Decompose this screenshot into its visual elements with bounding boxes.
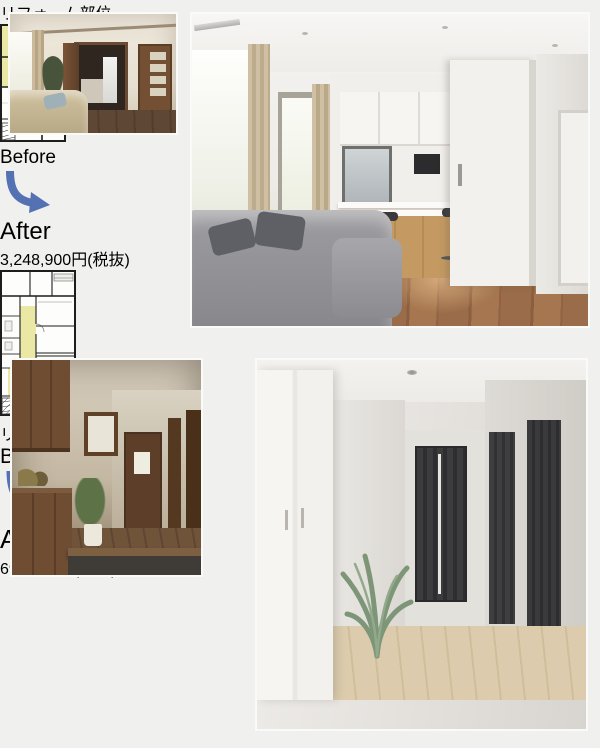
wall-frame: [84, 412, 118, 456]
back-door: [124, 432, 162, 536]
doorway: [558, 110, 590, 286]
downlight: [552, 44, 558, 47]
price-value: 3,248,900: [0, 252, 71, 269]
refrigerator: [103, 57, 117, 103]
brochure-page: リフォーム部位 Before After 3,248,900円(税抜): [0, 0, 600, 748]
cushion: [254, 211, 306, 251]
downlight: [442, 26, 448, 29]
sliding-door: [450, 60, 536, 286]
after-photo-ldk: [190, 12, 590, 328]
downlight: [302, 32, 308, 35]
before-photo-living-room: [8, 12, 178, 135]
door-handle: [458, 164, 462, 186]
door-glass-stripe: [438, 454, 441, 594]
sofa-arm: [332, 238, 402, 318]
decor-bottles: [18, 460, 58, 486]
plant-pot: [84, 524, 102, 546]
price-tax-note: (税抜): [87, 252, 130, 269]
curtain: [248, 44, 270, 234]
glass-cabinet: [342, 146, 392, 208]
price-unit: 円: [71, 252, 87, 269]
door-glass-panes: [145, 52, 166, 96]
microwave: [414, 154, 440, 174]
paneled-door: [138, 44, 172, 116]
upper-cabinet: [12, 360, 70, 452]
right-door: [168, 418, 181, 536]
entrance-tile: [68, 556, 203, 577]
downlight: [407, 370, 417, 375]
cushion: [207, 217, 257, 257]
dark-door: [527, 420, 561, 640]
dark-back-door: [415, 446, 467, 602]
after-photo-entrance: [255, 358, 588, 731]
right-wall: [536, 54, 590, 294]
shoe-closet: [257, 370, 333, 700]
right-door: [186, 410, 203, 542]
door-window: [134, 452, 150, 474]
sofa: [8, 90, 88, 135]
before-after-arrow-icon: [0, 169, 50, 213]
closet-handle: [301, 508, 304, 528]
entrance-step: [68, 548, 203, 556]
fern-plant: [337, 530, 417, 660]
gray-sofa: [190, 210, 392, 328]
cushion: [43, 92, 67, 110]
dark-door: [489, 432, 515, 624]
entrance-step: [297, 686, 588, 700]
lower-cabinet: [12, 488, 72, 577]
before-photo-hallway: [10, 358, 203, 577]
closet-handle: [285, 510, 288, 530]
